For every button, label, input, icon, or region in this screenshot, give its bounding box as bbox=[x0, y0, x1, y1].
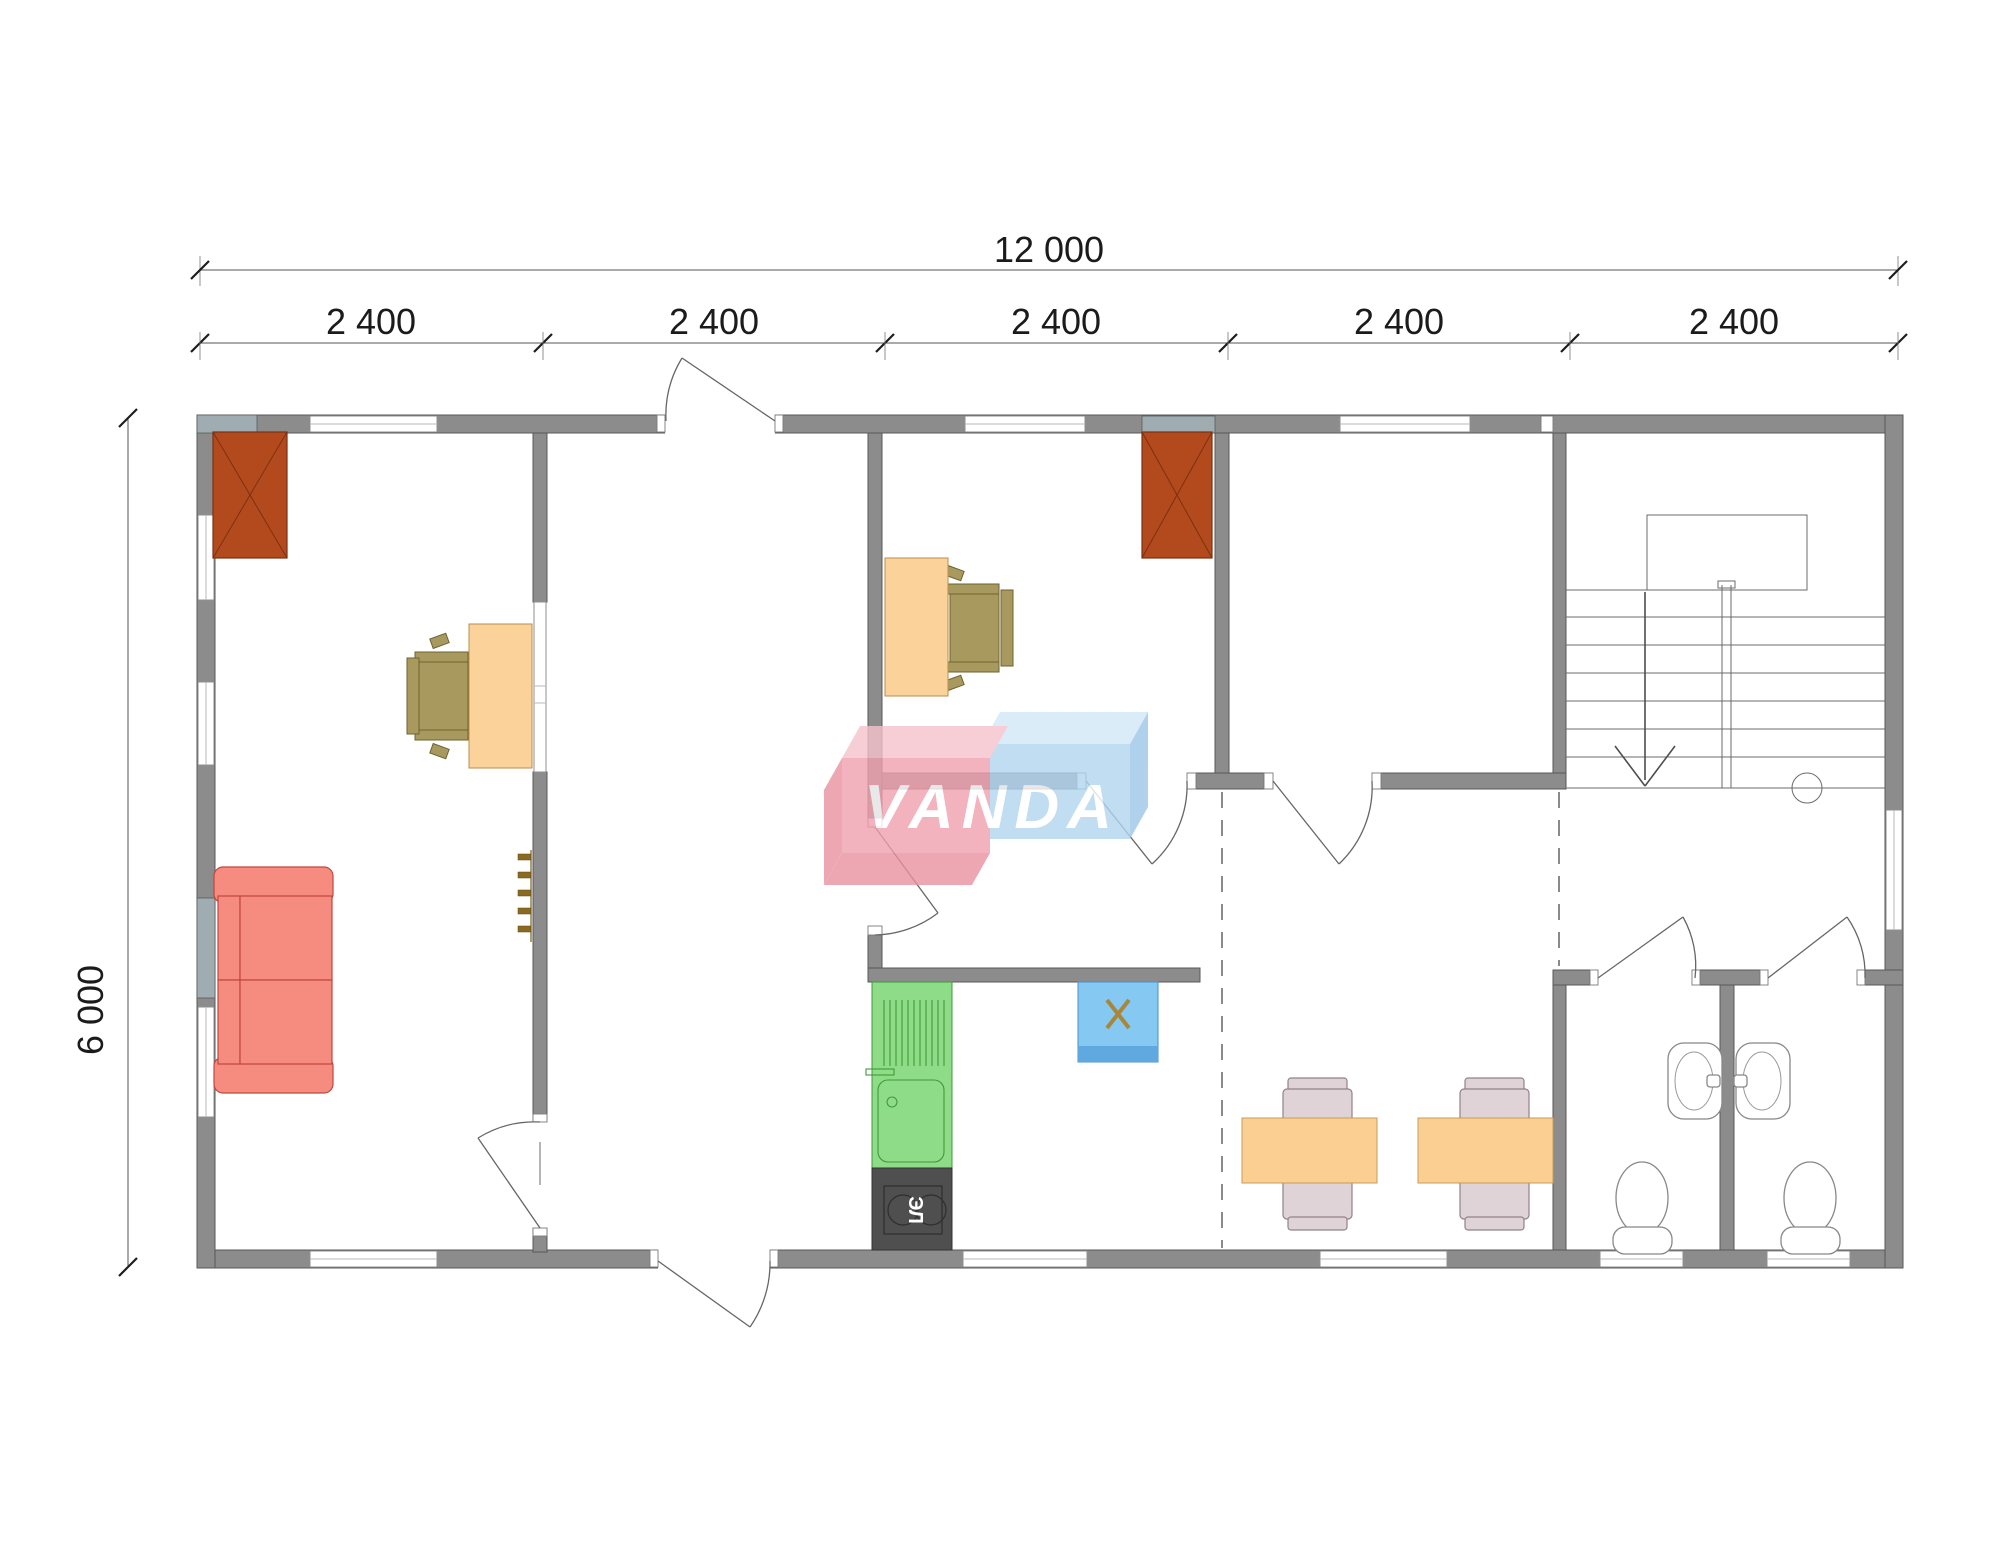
wc-left-door bbox=[1590, 917, 1700, 985]
dim-module-label: 2 400 bbox=[1011, 301, 1101, 342]
dim-total-width-label: 12 000 bbox=[994, 229, 1104, 270]
watermark-text: VANDA bbox=[864, 773, 1120, 842]
washbasin-icon bbox=[1668, 1043, 1722, 1119]
room4-door bbox=[1264, 773, 1381, 864]
coat-hooks-icon bbox=[518, 850, 531, 942]
toilet-icon bbox=[1613, 1162, 1672, 1254]
window bbox=[198, 682, 214, 765]
wall-mid-h2 bbox=[1196, 773, 1264, 789]
stove-icon: ЭЛ bbox=[872, 1168, 952, 1250]
desk-icon bbox=[885, 558, 948, 696]
dim-module-label: 2 400 bbox=[326, 301, 416, 342]
chimney-icon bbox=[1142, 432, 1212, 558]
wall-wc-top bbox=[1865, 970, 1903, 985]
wall-wc-top bbox=[1553, 970, 1590, 985]
window bbox=[965, 416, 1085, 432]
stair-direction-arrow bbox=[1615, 592, 1675, 786]
entrance-door bbox=[657, 358, 783, 434]
wall-kitchen-top bbox=[868, 968, 1200, 982]
stairs bbox=[1566, 515, 1885, 803]
wall-wc-west bbox=[1553, 985, 1566, 1250]
wall-left-room bbox=[533, 772, 547, 1122]
desk-icon bbox=[469, 624, 532, 768]
window bbox=[963, 1251, 1087, 1267]
floor-plan-page: 12 000 2 400 2 400 2 400 2 400 2 400 6 0… bbox=[0, 0, 2000, 1563]
dining-table bbox=[1242, 1118, 1377, 1183]
water-heater-icon bbox=[1078, 982, 1158, 1062]
wall-mid-h3 bbox=[1381, 773, 1566, 789]
dim-height-label: 6 000 bbox=[70, 965, 111, 1055]
wall-wc-top bbox=[1700, 970, 1760, 985]
wall-left-room bbox=[533, 433, 547, 602]
back-door bbox=[650, 1249, 778, 1327]
window bbox=[1340, 416, 1470, 432]
window bbox=[198, 515, 214, 600]
wc-right-door bbox=[1760, 917, 1865, 985]
interior-opening bbox=[534, 602, 546, 772]
floor-plan-canvas: 12 000 2 400 2 400 2 400 2 400 2 400 6 0… bbox=[0, 0, 2000, 1563]
window bbox=[1320, 1251, 1447, 1267]
dim-module-label: 2 400 bbox=[669, 301, 759, 342]
wall-room3-east bbox=[1215, 433, 1229, 789]
dim-module-label: 2 400 bbox=[1689, 301, 1779, 342]
wall-wc-partition bbox=[1720, 985, 1734, 1250]
toilet-icon bbox=[1781, 1162, 1840, 1254]
window bbox=[310, 416, 437, 432]
kitchen-sink-icon bbox=[866, 982, 952, 1168]
dim-module-label: 2 400 bbox=[1354, 301, 1444, 342]
office-chair-icon bbox=[945, 566, 1013, 691]
sofa bbox=[214, 867, 333, 1093]
washbasin-icon bbox=[1734, 1043, 1790, 1119]
vanda-watermark: VANDA bbox=[824, 712, 1148, 885]
window bbox=[1886, 810, 1902, 930]
window bbox=[310, 1251, 437, 1267]
window bbox=[198, 1007, 214, 1117]
office-chair-icon bbox=[407, 633, 468, 759]
dining-table bbox=[1418, 1118, 1553, 1183]
wall-stairs-west bbox=[1553, 433, 1566, 789]
stove-label: ЭЛ bbox=[904, 1196, 926, 1224]
chimney-icon bbox=[213, 432, 287, 558]
left-room-door bbox=[478, 1114, 548, 1236]
